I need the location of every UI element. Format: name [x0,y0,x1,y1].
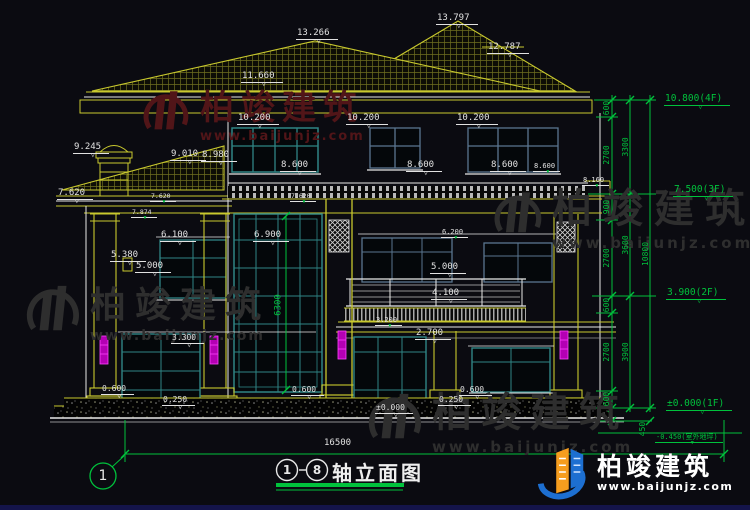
brand-logo-url: www.baijunjz.com [597,480,733,493]
tall-window [234,214,322,392]
window-bottom-edge [0,505,750,510]
elevation-drawing [0,0,750,510]
cad-viewport: 柏竣建筑 www.baijunjz.com 柏竣建筑 www.baijunjz.… [0,0,750,510]
brand-logo: 柏竣建筑 www.baijunjz.com [533,443,750,503]
third-floor-windows [229,128,561,174]
cornice-band [222,181,610,213]
drawing-title: 轴立面图 [332,457,424,486]
roof-planes [56,21,592,213]
title-axis-from: 1 [283,463,291,477]
axis-bubble-label: 1 [99,468,108,484]
brand-logo-text: 柏竣建筑 [597,453,733,481]
brand-logo-icon [533,445,591,501]
plinth-ground [50,398,624,422]
second-floor [123,234,616,338]
title-axis-to: 8 [313,463,321,477]
